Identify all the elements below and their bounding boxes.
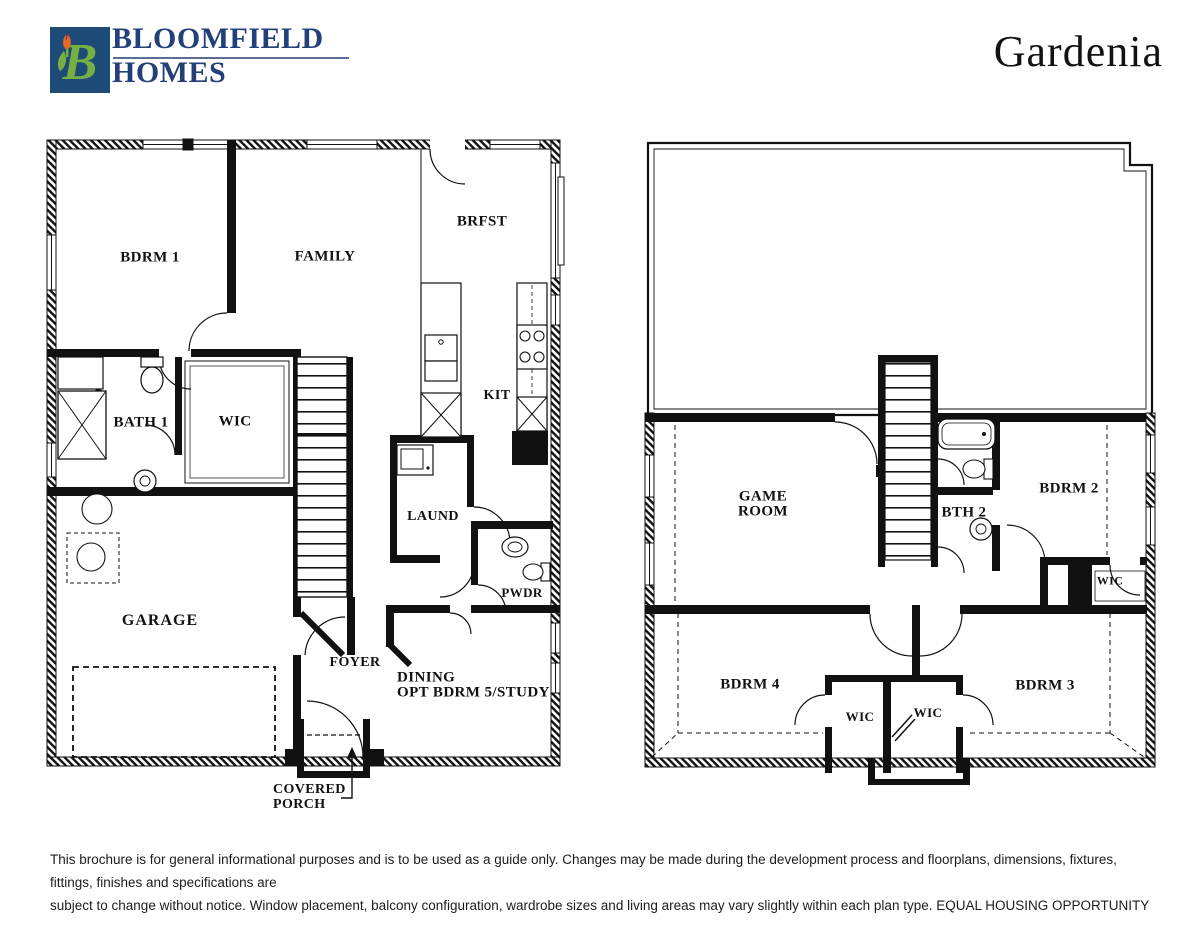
room-label-bth2: BTH 2 <box>942 505 987 522</box>
brand-rule <box>113 57 349 59</box>
room-label-brfst: BRFST <box>457 214 507 231</box>
room-label-foyer: FOYER <box>330 655 381 671</box>
room-label-garage: GARAGE <box>122 612 198 630</box>
logo-icon-svg: B <box>50 27 110 93</box>
second-floor-drawing <box>640 135 1160 795</box>
bloomfield-logo-icon: B <box>50 27 110 93</box>
room-label-bdrm3: BDRM 3 <box>1015 678 1074 695</box>
brand-wordmark: BLOOMFIELD HOMES <box>112 24 372 88</box>
room-label-bdrm1: BDRM 1 <box>120 250 179 267</box>
room-label-wic-bdrm3: WIC <box>914 705 943 721</box>
room-label-family: FAMILY <box>295 249 356 266</box>
room-label-pwdr: PWDR <box>501 585 542 601</box>
room-label-laund: LAUND <box>407 509 459 525</box>
room-label-dining-line2: OPT BDRM 5/STUDY <box>397 685 550 702</box>
brochure-page: B BLOOMFIELD HOMES Gardenia <box>0 0 1200 927</box>
room-label-game-line2: ROOM <box>738 504 788 521</box>
room-label-wic1: WIC <box>219 414 252 431</box>
room-label-bdrm4: BDRM 4 <box>720 677 779 694</box>
room-label-kit: KIT <box>484 388 511 404</box>
brand-line2: HOMES <box>112 58 372 88</box>
room-label-wic-bdrm2: WIC <box>1097 574 1124 589</box>
first-floor-plan: BDRM 1 FAMILY BRFST KIT BATH 1 WIC LAUND… <box>45 135 565 825</box>
disclaimer: This brochure is for general information… <box>50 848 1160 917</box>
disclaimer-line1: This brochure is for general information… <box>50 848 1160 894</box>
disclaimer-line2: subject to change without notice. Window… <box>50 894 1160 917</box>
room-label-porch-line2: PORCH <box>273 797 326 813</box>
room-label-bdrm2: BDRM 2 <box>1039 481 1098 498</box>
room-label-wic-bdrm4: WIC <box>846 709 875 725</box>
brand-line1: BLOOMFIELD <box>112 24 372 54</box>
room-label-porch-line1: COVERED <box>273 782 346 798</box>
room-label-bath1: BATH 1 <box>113 415 168 432</box>
first-floor-drawing <box>45 135 565 825</box>
page-title: Gardenia <box>994 26 1163 77</box>
second-floor-plan: GAME ROOM BTH 2 BDRM 2 WIC BDRM 4 WIC WI… <box>640 135 1160 795</box>
